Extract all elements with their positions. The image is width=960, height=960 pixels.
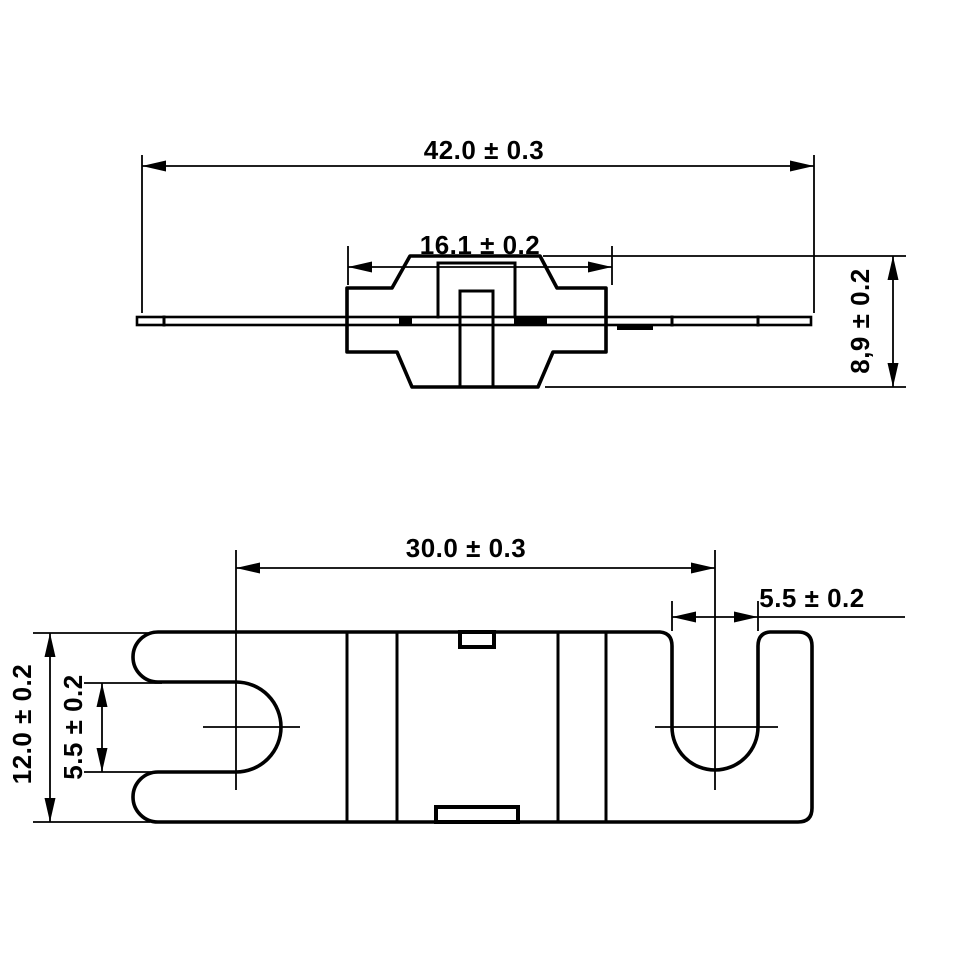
arrowhead-down [45, 798, 56, 822]
bottom-notch [436, 807, 518, 822]
arrowhead-left [348, 262, 372, 273]
mounting-plate [133, 632, 812, 822]
arrowhead-up [45, 633, 56, 657]
side-view: 42.0 ± 0.3 16.1 ± 0.2 8,9 ± 0.2 [137, 135, 906, 387]
weld-bead [399, 318, 412, 325]
arrowhead-right [691, 563, 715, 574]
arrowhead-left [672, 612, 696, 623]
arrowhead-right [790, 161, 814, 172]
engineering-drawing-canvas: 42.0 ± 0.3 16.1 ± 0.2 8,9 ± 0.2 [0, 0, 960, 960]
arrowhead-right [734, 612, 758, 623]
dim-label-height: 8,9 ± 0.2 [845, 268, 875, 374]
arrowhead-left [236, 563, 260, 574]
dim-label-plate-width: 12.0 ± 0.2 [7, 664, 37, 784]
dim-label-left-slot-width: 5.5 ± 0.2 [58, 674, 88, 780]
dim-label-right-slot-width: 5.5 ± 0.2 [759, 583, 865, 613]
arrowhead-down [888, 363, 899, 387]
weld-bead [514, 318, 547, 325]
dim-label-overall-width: 42.0 ± 0.3 [424, 135, 544, 165]
weld-bead [617, 325, 653, 330]
thermostat-dimension-drawing: 42.0 ± 0.3 16.1 ± 0.2 8,9 ± 0.2 [0, 0, 960, 960]
plan-view: 30.0 ± 0.3 5.5 ± 0.2 5.5 ± 0.2 [7, 533, 905, 822]
dim-right-slot-width: 5.5 ± 0.2 [672, 583, 905, 631]
arrowhead-down [97, 748, 108, 772]
dim-slot-center-spacing: 30.0 ± 0.3 [236, 533, 715, 790]
arrowhead-right [588, 262, 612, 273]
terminal-strip-body [137, 317, 811, 325]
dim-left-slot-width: 5.5 ± 0.2 [58, 674, 162, 780]
arrowhead-up [97, 683, 108, 707]
top-notch [460, 632, 494, 647]
arrowhead-up [888, 256, 899, 280]
center-post [460, 291, 493, 387]
dim-label-slot-center-spacing: 30.0 ± 0.3 [406, 533, 526, 563]
arrowhead-left [142, 161, 166, 172]
dim-overall-width: 42.0 ± 0.3 [142, 135, 814, 313]
terminal-strip [137, 317, 811, 330]
